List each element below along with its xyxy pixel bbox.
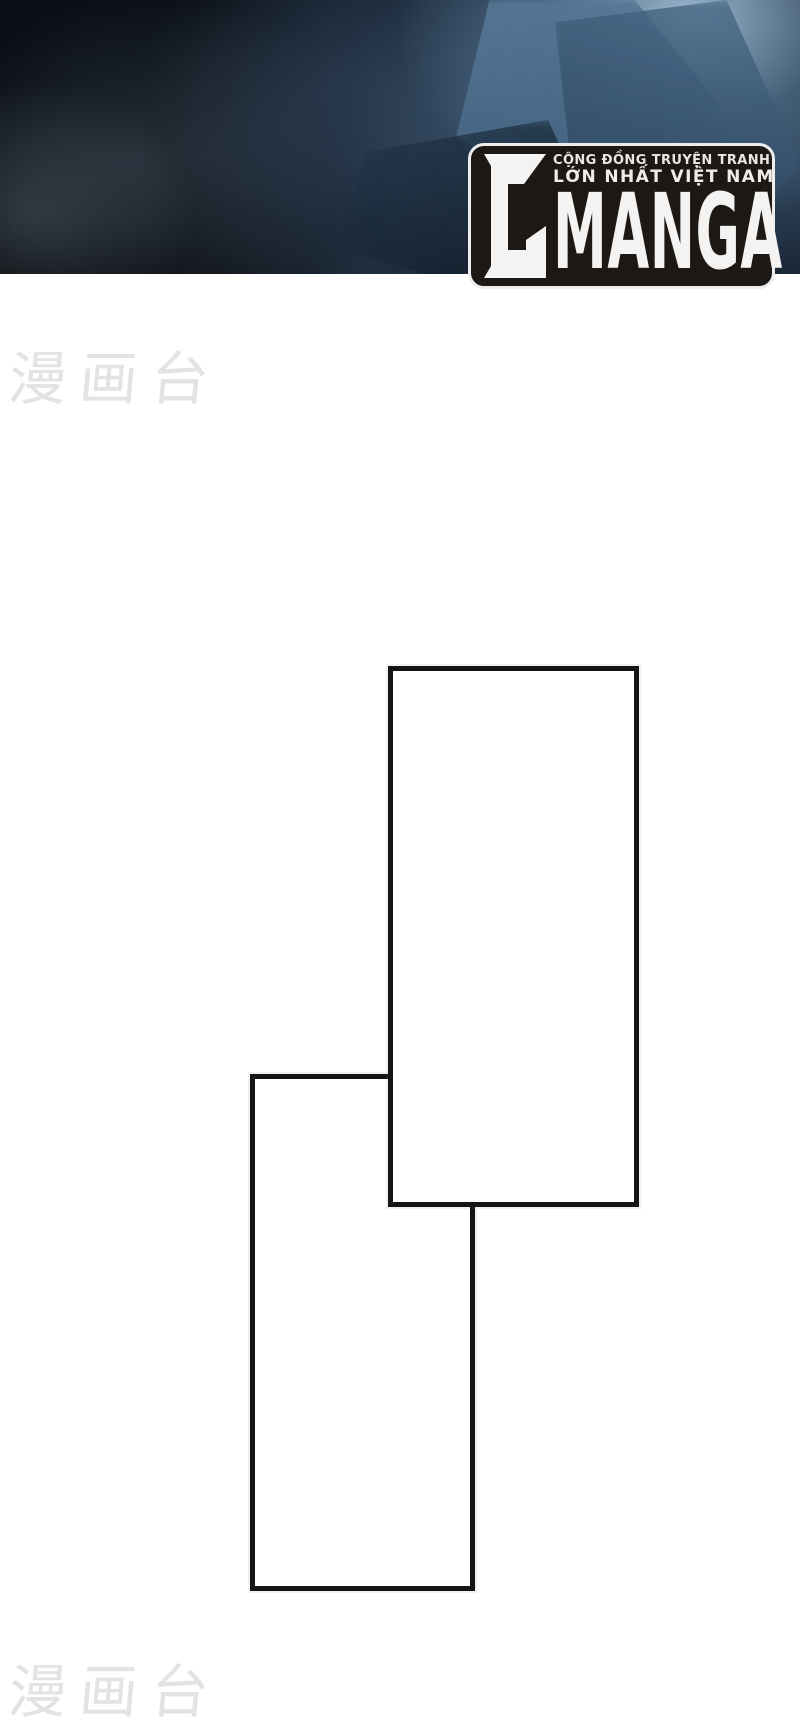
logo-tagline-line1: CỘNG ĐỒNG TRUYỆN TRANH [553,153,768,168]
logo-text-column: CỘNG ĐỒNG TRUYỆN TRANH LỚN NHẤT VIỆT NAM… [553,153,768,187]
cmanga-c-monogram-icon [484,154,546,278]
watermark-bottom: 漫画台 [6,1661,411,1723]
watermark-top: 漫画台 [6,348,411,410]
comic-panel-1 [388,666,639,1207]
cmanga-logo-badge: CỘNG ĐỒNG TRUYỆN TRANH LỚN NHẤT VIỆT NAM… [468,143,775,289]
logo-brand-text: MANGA [553,190,761,274]
